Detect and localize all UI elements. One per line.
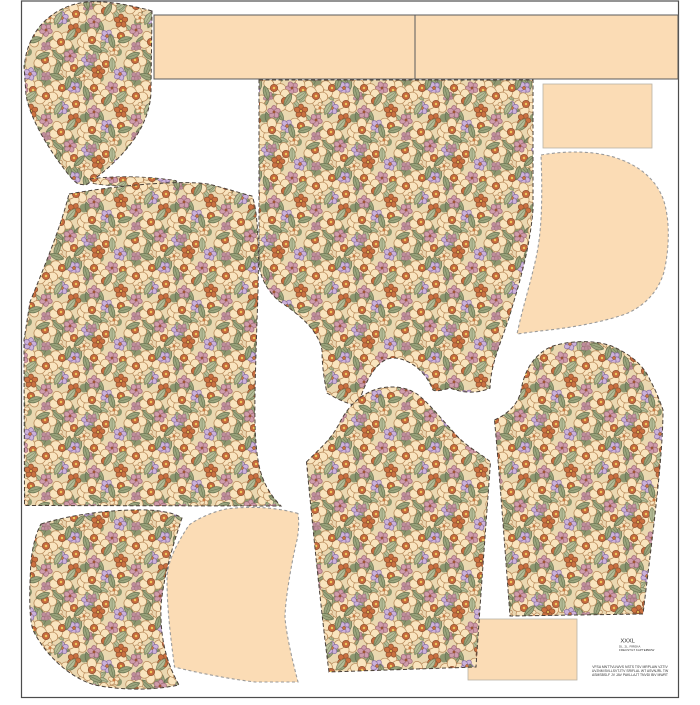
svg-text:FRECSTILT KAPTEIBIRW: FRECSTILT KAPTEIBIRW [619, 648, 655, 652]
svg-text:ASMSBSLF JV JAV PAKLLAJT TNVDI: ASMSBSLF JV JAV PAKLLAJT TNVDI BIV MWRT [592, 673, 668, 677]
